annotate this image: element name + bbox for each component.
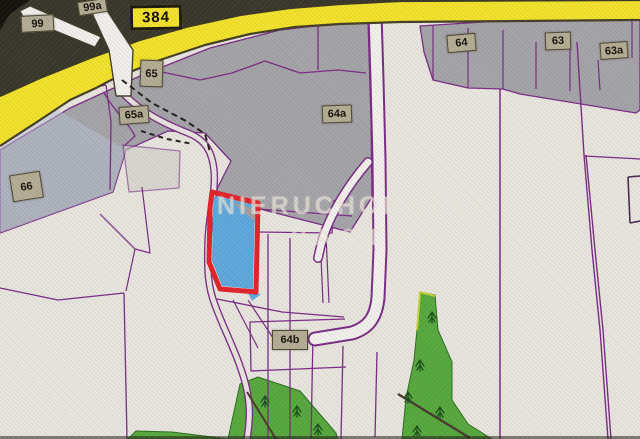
parcel-label-63a: 63a	[599, 41, 628, 60]
boundary-redge-2	[628, 176, 640, 177]
parcel-label-65: 65	[140, 60, 164, 88]
map-canvas[interactable]	[0, 0, 640, 439]
parcel-label-64: 64	[446, 33, 476, 53]
road-number-label-384: 384	[130, 5, 182, 31]
parcel-label-64b: 64b	[272, 330, 308, 350]
parcel-label-65a: 65a	[118, 105, 149, 125]
parcel-label-64a: 64a	[322, 104, 353, 123]
parcel-label-66: 66	[9, 171, 44, 203]
parcel-label-63: 63	[545, 32, 572, 51]
parcel-label-99: 99	[21, 14, 55, 33]
parcel-rect-65a-east	[123, 145, 180, 192]
map-viewport: 9999a3846565a66646363a64a64b NIERUCHOMOŚ…	[0, 0, 640, 439]
